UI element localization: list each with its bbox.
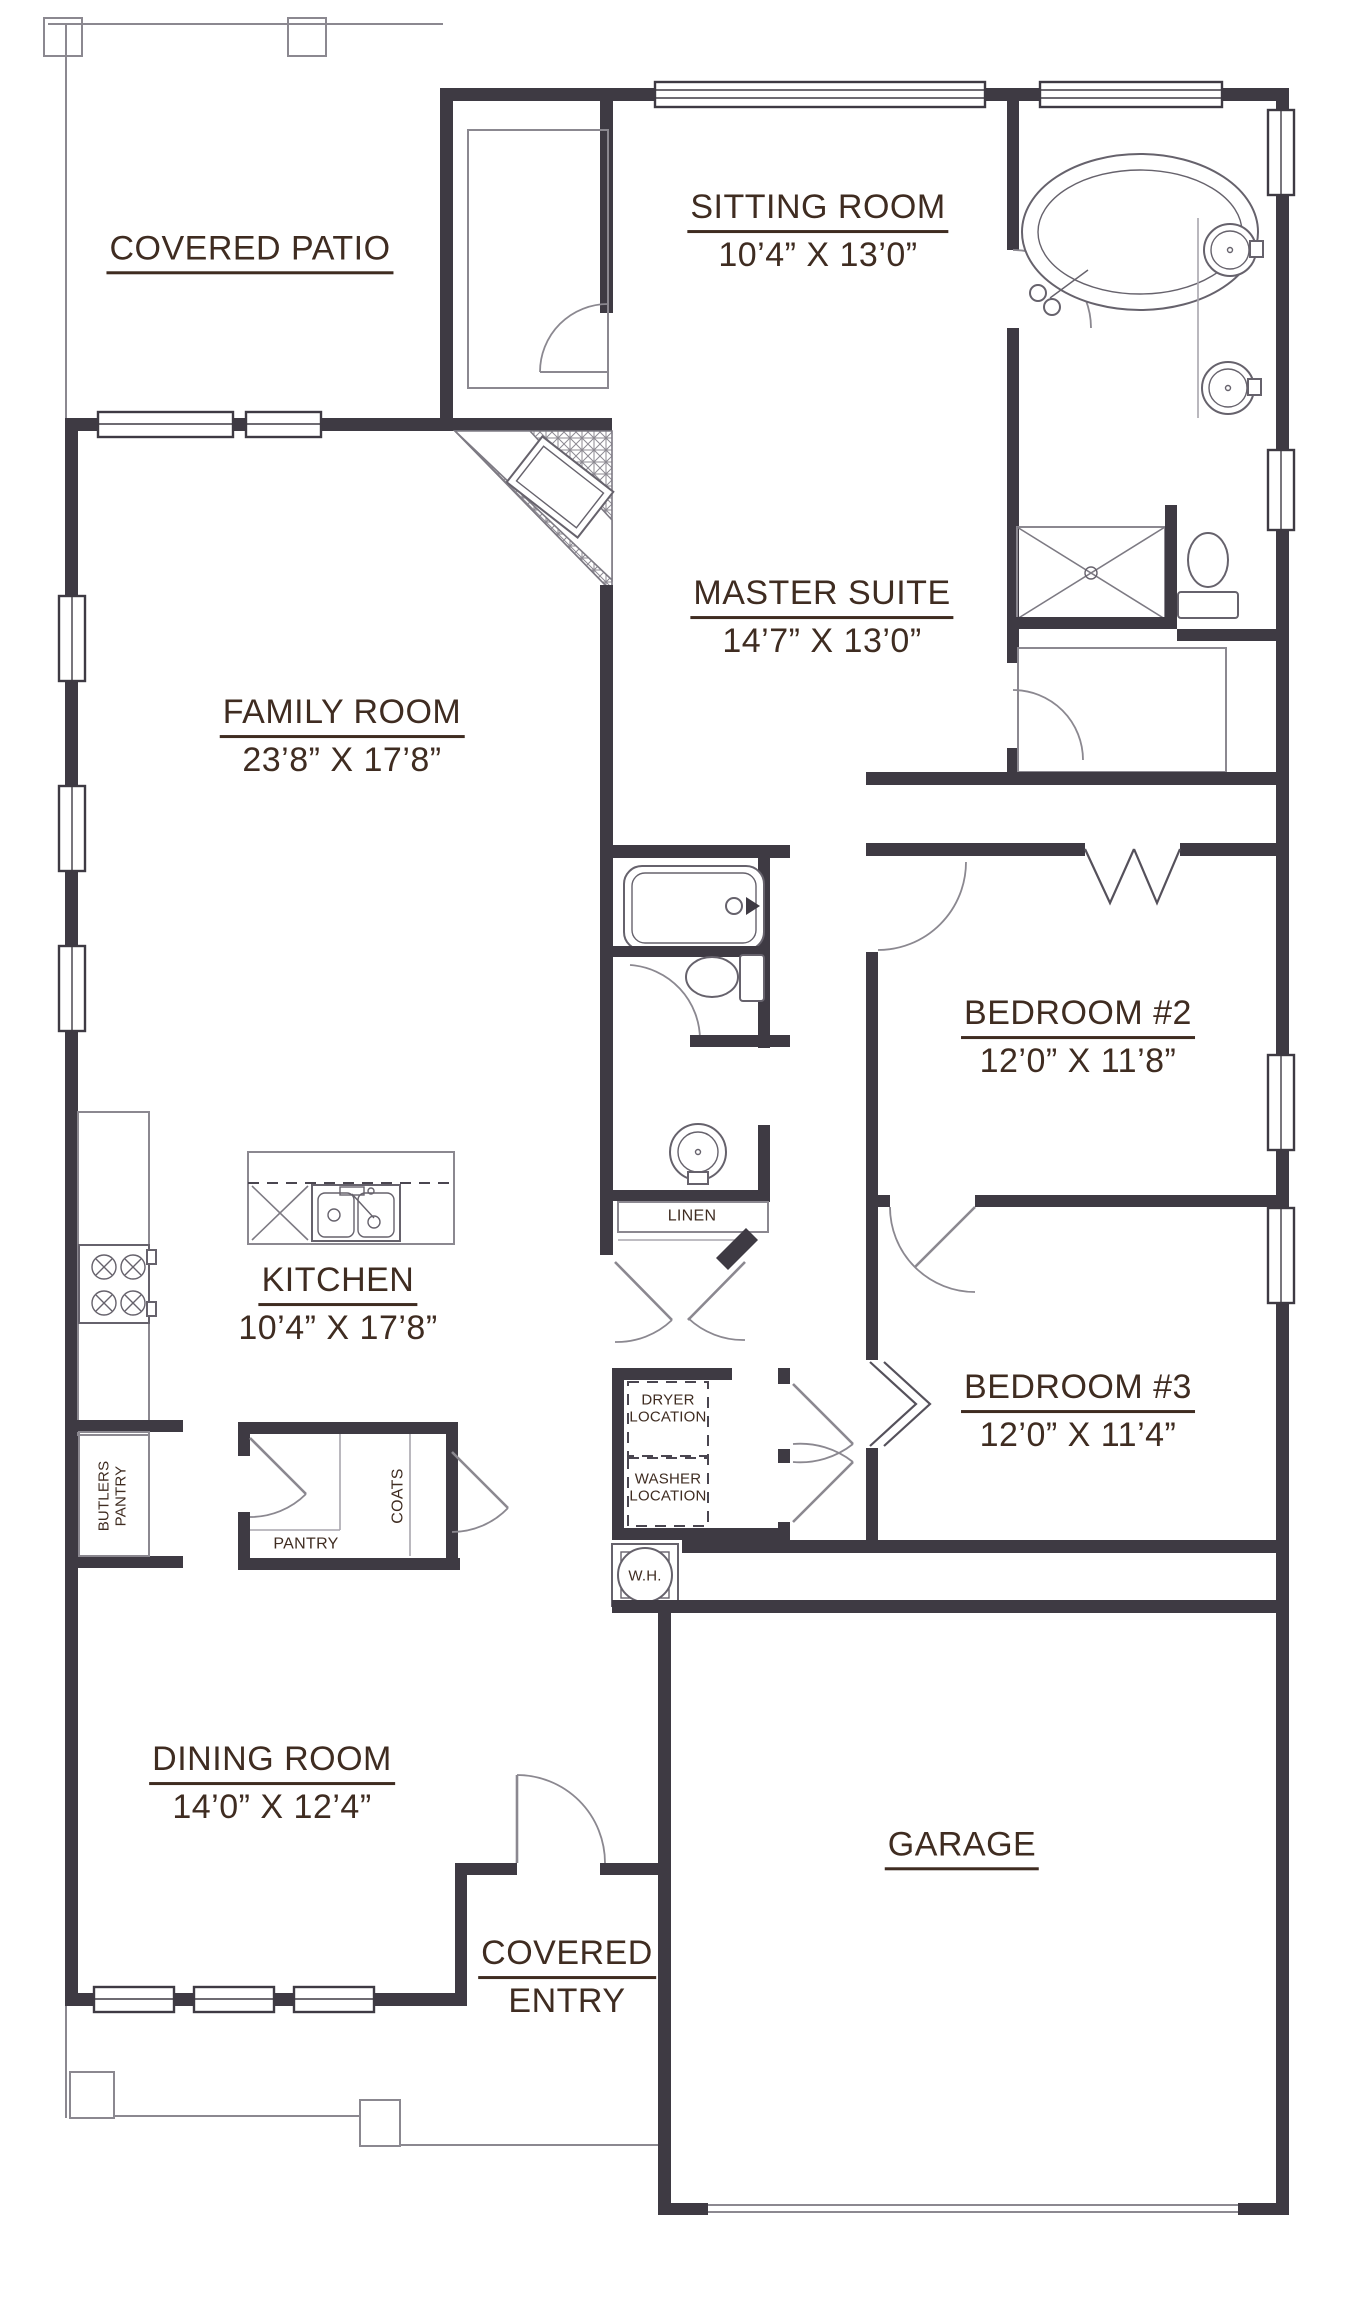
floor-plan-drawing bbox=[0, 0, 1350, 2304]
label-water-heater: W.H. bbox=[628, 1567, 661, 1584]
label-covered-patio: COVERED PATIO bbox=[106, 229, 393, 274]
label-sitting-room: SITTING ROOM 10’4” X 13’0” bbox=[687, 188, 948, 276]
fireplace bbox=[455, 431, 613, 592]
label-washer-location: WASHER LOCATION bbox=[629, 1471, 706, 1506]
front-entry bbox=[455, 1775, 658, 1875]
bath-2 bbox=[600, 845, 790, 1342]
entry-porch-outline bbox=[66, 2006, 658, 2146]
label-coats: COATS bbox=[390, 1468, 409, 1523]
label-master-suite: MASTER SUITE 14’7” X 13’0” bbox=[690, 574, 953, 662]
garage-walls bbox=[612, 1600, 1288, 2212]
label-dining-room: DINING ROOM 14’0” X 12’4” bbox=[149, 1740, 395, 1828]
alcove bbox=[468, 130, 608, 388]
label-kitchen: KITCHEN 10’4” X 17’8” bbox=[238, 1261, 437, 1349]
label-garage: GARAGE bbox=[885, 1825, 1039, 1870]
label-pantry: PANTRY bbox=[273, 1536, 338, 1555]
label-family-room: FAMILY ROOM 23’8” X 17’8” bbox=[220, 693, 465, 781]
interior-walls-left bbox=[600, 585, 613, 1255]
label-linen: LINEN bbox=[668, 1208, 717, 1227]
label-bedroom-3: BEDROOM #3 12’0” X 11’4” bbox=[961, 1368, 1195, 1456]
label-covered-entry: COVERED ENTRY bbox=[478, 1934, 656, 2022]
label-bedroom-2: BEDROOM #2 12’0” X 11’8” bbox=[961, 994, 1195, 1082]
label-dryer-location: DRYER LOCATION bbox=[629, 1392, 706, 1427]
master-bath bbox=[1007, 88, 1288, 641]
floor-plan: COVERED PATIO SITTING ROOM 10’4” X 13’0”… bbox=[0, 0, 1350, 2304]
label-butlers-pantry: BUTLERS PANTRY bbox=[96, 1461, 131, 1532]
covered-patio-outline bbox=[44, 18, 443, 418]
